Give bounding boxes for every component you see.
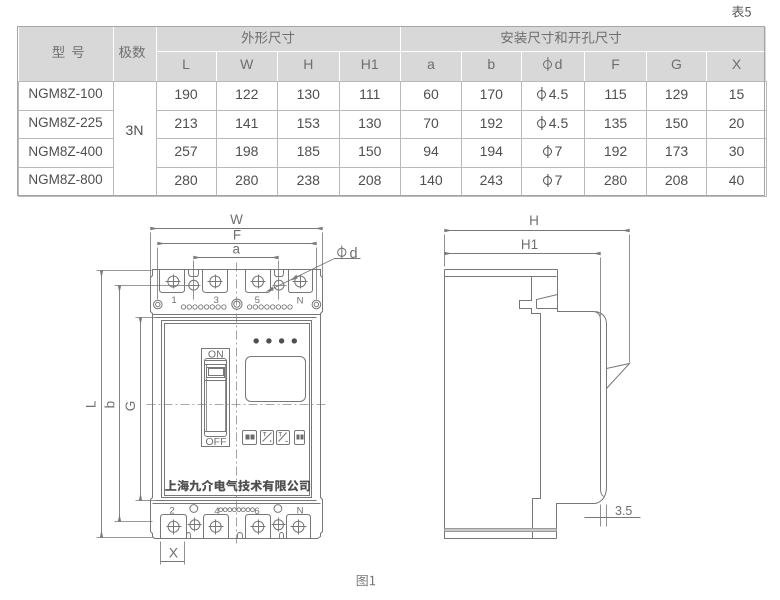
svg-text:6: 6 xyxy=(254,506,259,517)
svg-text:X: X xyxy=(169,545,179,561)
svg-text:3.5: 3.5 xyxy=(615,504,632,518)
svg-text:H: H xyxy=(529,213,539,228)
svg-text:W: W xyxy=(230,212,243,227)
svg-text:L: L xyxy=(84,400,99,408)
svg-text:F: F xyxy=(233,228,241,243)
svg-text:1: 1 xyxy=(171,295,176,306)
svg-text:b: b xyxy=(103,401,118,409)
svg-text:4: 4 xyxy=(214,506,219,517)
svg-text:a: a xyxy=(233,242,241,257)
svg-text:5: 5 xyxy=(255,295,260,306)
svg-text:H1: H1 xyxy=(521,237,538,252)
svg-text:OFF: OFF xyxy=(206,436,227,448)
svg-text:N: N xyxy=(297,296,304,307)
svg-text:3: 3 xyxy=(214,295,219,306)
svg-text:d: d xyxy=(350,246,358,262)
svg-text:G: G xyxy=(123,401,138,412)
